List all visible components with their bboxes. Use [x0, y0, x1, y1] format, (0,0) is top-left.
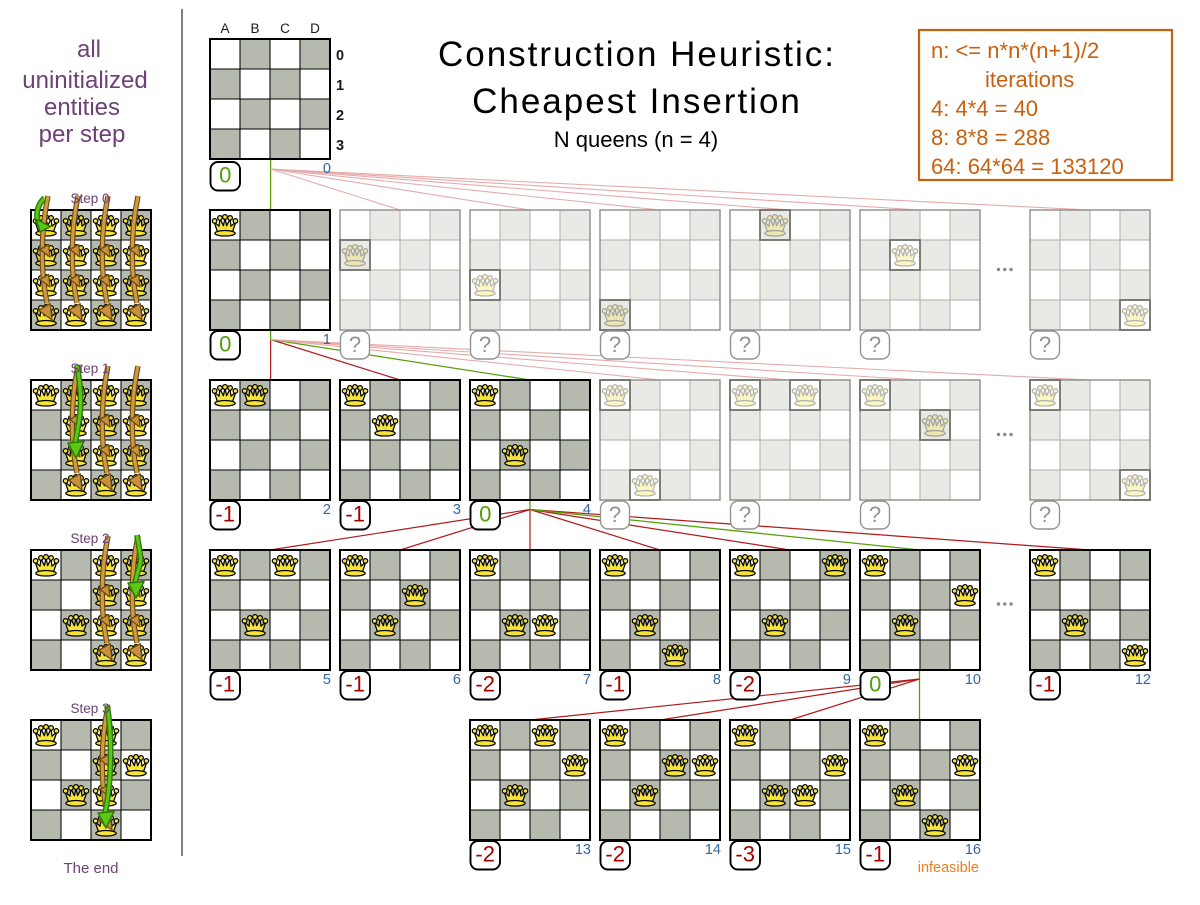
svg-text:0: 0	[323, 161, 331, 177]
svg-text:-2: -2	[735, 672, 755, 697]
svg-text:?: ?	[739, 502, 751, 527]
svg-text:C: C	[280, 21, 290, 36]
svg-text:?: ?	[869, 332, 881, 357]
svg-text:?: ?	[1039, 332, 1051, 357]
svg-text:Step 1: Step 1	[70, 361, 109, 376]
svg-text:?: ?	[869, 502, 881, 527]
svg-text:-2: -2	[475, 842, 495, 867]
svg-text:?: ?	[1039, 502, 1051, 527]
svg-text:n: <= n*n*(n+1)/2: n: <= n*n*(n+1)/2	[931, 38, 1099, 63]
svg-text:-1: -1	[345, 502, 365, 527]
svg-text:Step 3: Step 3	[70, 701, 109, 716]
svg-text:Construction Heuristic:: Construction Heuristic:	[438, 35, 836, 74]
svg-text:64: 64*64 = 133120: 64: 64*64 = 133120	[931, 154, 1124, 179]
svg-text:16: 16	[965, 842, 981, 858]
svg-text:0: 0	[336, 48, 344, 64]
svg-text:iterations: iterations	[985, 67, 1074, 92]
svg-text:14: 14	[705, 842, 721, 858]
svg-text:-2: -2	[605, 842, 625, 867]
svg-text:Step 2: Step 2	[70, 531, 109, 546]
svg-text:per step: per step	[39, 121, 126, 148]
svg-text:13: 13	[575, 842, 591, 858]
svg-text:Cheapest Insertion: Cheapest Insertion	[472, 82, 802, 121]
svg-text:?: ?	[349, 332, 361, 357]
svg-text:1: 1	[336, 78, 344, 94]
svg-text:A: A	[220, 21, 229, 36]
svg-text:infeasible: infeasible	[918, 860, 979, 876]
svg-text:?: ?	[479, 332, 491, 357]
svg-text:5: 5	[323, 672, 331, 688]
svg-text:8: 8	[713, 672, 721, 688]
svg-text:3: 3	[453, 502, 461, 518]
svg-text:0: 0	[219, 332, 231, 357]
svg-text:-3: -3	[735, 842, 755, 867]
svg-text:8: 8*8 = 288: 8: 8*8 = 288	[931, 125, 1050, 150]
svg-text:D: D	[310, 21, 320, 36]
svg-text:N queens (n = 4): N queens (n = 4)	[554, 127, 718, 152]
svg-text:entities: entities	[44, 94, 120, 121]
svg-text:B: B	[250, 21, 259, 36]
svg-text:4: 4*4 = 40: 4: 4*4 = 40	[931, 96, 1038, 121]
svg-text:The end: The end	[63, 860, 118, 877]
svg-text:-1: -1	[215, 672, 235, 697]
svg-text:uninitialized: uninitialized	[22, 67, 147, 94]
svg-text:15: 15	[835, 842, 851, 858]
svg-text:4: 4	[583, 502, 591, 518]
svg-text:Step 0: Step 0	[70, 191, 109, 206]
svg-text:-1: -1	[865, 842, 885, 867]
svg-text:1: 1	[323, 332, 331, 348]
svg-text:all: all	[77, 36, 101, 63]
svg-text:7: 7	[583, 672, 591, 688]
svg-text:?: ?	[609, 332, 621, 357]
svg-text:0: 0	[479, 502, 491, 527]
svg-text:0: 0	[219, 163, 231, 188]
svg-text:2: 2	[323, 502, 331, 518]
svg-text:12: 12	[1135, 672, 1151, 688]
svg-text:-1: -1	[605, 672, 625, 697]
svg-text:9: 9	[843, 672, 851, 688]
svg-text:10: 10	[965, 672, 981, 688]
svg-text:0: 0	[869, 672, 881, 697]
svg-text:6: 6	[453, 672, 461, 688]
svg-text:?: ?	[609, 502, 621, 527]
svg-text:-1: -1	[215, 502, 235, 527]
svg-text:2: 2	[336, 108, 344, 124]
svg-text:3: 3	[336, 138, 344, 154]
svg-text:-1: -1	[345, 672, 365, 697]
svg-text:-1: -1	[1035, 672, 1055, 697]
svg-text:-2: -2	[475, 672, 495, 697]
svg-text:?: ?	[739, 332, 751, 357]
